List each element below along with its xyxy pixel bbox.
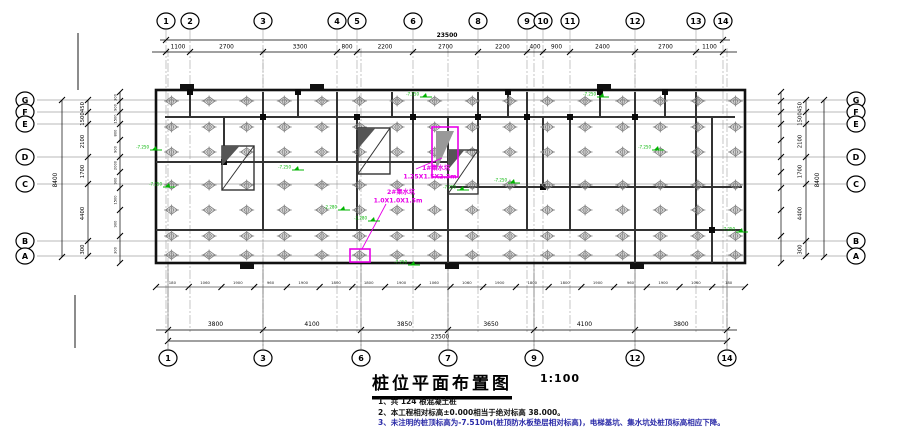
dim-segment-bottom: 3800 [673, 321, 688, 328]
wall-tab [310, 84, 324, 91]
dim-segment-bottom: 3650 [483, 321, 498, 328]
axis-bubble-label: A [853, 252, 860, 261]
dim-segment-sub: 1900 [397, 280, 407, 285]
dim-segment-top: 1100 [171, 45, 186, 51]
dim-segment-sub: 1900 [233, 280, 243, 285]
note-line: 2、本工程相对标高±0.000相当于绝对标高 38.000。 [378, 408, 725, 419]
axis-bubble-label: B [22, 237, 28, 246]
sump-label: 1#集水坑 [422, 164, 451, 172]
column-blob [260, 114, 266, 120]
dim-segment-top: 900 [551, 45, 562, 51]
note-line: 3、未注明的桩顶标高为-7.510m(桩顶防水板垫层相对标高)，电梯基坑、集水坑… [378, 418, 725, 429]
dim-segment-sub: 180 [169, 280, 177, 285]
elevation-marker [340, 206, 345, 210]
dim-segment-side: 1500 [114, 114, 118, 124]
elevation-value: -7.250 [394, 260, 407, 265]
axis-bubble-label: 10 [537, 17, 549, 26]
stair-flight [448, 150, 465, 170]
dim-segment-side: 300 [114, 93, 118, 101]
dim-segment-sub: 1900 [658, 280, 668, 285]
drawing-title: 桩位平面布置图 [372, 369, 512, 397]
dim-segment-sub: 960 [627, 280, 635, 285]
dim-segment-top: 2700 [658, 45, 673, 51]
dim-segment-side: 2100 [798, 134, 804, 148]
elevation-value: -7.250 [494, 178, 507, 183]
dim-segment-side: 1500 [80, 112, 86, 126]
elevation-marker [294, 166, 299, 170]
axis-bubble-label: 14 [717, 17, 729, 26]
axis-bubble-label: 7 [445, 354, 451, 363]
dim-overall-right: 8400 [815, 172, 821, 187]
elevation-marker [370, 217, 375, 221]
axis-bubble-label: D [853, 153, 860, 162]
column-blob [187, 89, 193, 95]
dim-segment-side: 900 [114, 177, 118, 185]
dim-segment-side: 300 [798, 244, 804, 255]
dim-segment-side: 1700 [80, 164, 86, 178]
elevation-value: -7.250 [638, 145, 651, 150]
dim-segment-top: 1100 [702, 45, 717, 51]
axis-bubble-label: 11 [564, 17, 576, 26]
dim-segment-side: 900 [114, 145, 118, 153]
dim-segment-side: 300 [80, 244, 86, 255]
dim-overall-top: 23500 [437, 32, 458, 39]
dim-segment-top: 3300 [293, 45, 308, 51]
dim-segment-sub: 180 [725, 280, 733, 285]
axis-bubble-label: C [853, 180, 859, 189]
axis-bubble-label: 9 [524, 17, 530, 26]
axis-bubble-label: 5 [354, 17, 360, 26]
stair-flight [358, 128, 376, 149]
axis-bubble-label: 13 [690, 17, 701, 26]
column-blob [295, 89, 301, 95]
dim-segment-side: 1700 [798, 164, 804, 178]
elevation-value: -2.280 [354, 216, 367, 221]
dim-segment-top: 2700 [219, 45, 234, 51]
column-blob [475, 114, 481, 120]
dim-segment-side: 4400 [80, 206, 86, 220]
axis-bubble-label: 6 [358, 354, 364, 363]
dim-segment-sub: 1060 [691, 280, 701, 285]
axis-bubble-label: 12 [629, 354, 640, 363]
axis-bubble-label: 6 [410, 17, 416, 26]
dim-segment-top: 2200 [495, 45, 510, 51]
dim-overall-bottom: 23500 [431, 335, 450, 341]
axis-bubble-label: 14 [721, 354, 733, 363]
axis-bubble-label: 3 [260, 354, 266, 363]
dim-segment-side: 900 [114, 103, 118, 111]
dim-segment-side: 1500 [798, 112, 804, 126]
dim-segment-side: 900 [114, 220, 118, 228]
axis-bubble-label: 2 [187, 17, 193, 26]
elevation-value: -7.250 [722, 227, 735, 232]
wall-tab [445, 262, 459, 269]
column-blob [567, 114, 573, 120]
wall-tab [240, 262, 254, 269]
title-block: 桩位平面布置图 1:100 [372, 369, 580, 397]
dim-segment-side: 1500 [114, 195, 118, 205]
sump-label: 1.25X1.5X2.3m [403, 174, 456, 181]
elevation-marker [654, 146, 659, 150]
dim-segment-sub: 1060 [462, 280, 472, 285]
dim-segment-sub: 1900 [298, 280, 308, 285]
dim-segment-bottom: 3850 [397, 321, 412, 328]
wall-tab [630, 262, 644, 269]
dim-segment-sub: 1060 [429, 280, 439, 285]
dim-segment-top: 800 [341, 45, 352, 51]
dim-segment-side: 450 [80, 101, 86, 112]
dim-segment-sub: 1900 [495, 280, 505, 285]
dim-segment-sub: 960 [267, 280, 275, 285]
elevation-marker [422, 93, 427, 97]
note-line: 1、共 124 根混凝土桩 [378, 397, 725, 408]
dim-segment-side: 2100 [80, 134, 86, 148]
elevation-value: -7.250 [443, 185, 456, 190]
axis-bubble-label: D [22, 153, 29, 162]
axis-bubble-label: 1 [163, 17, 169, 26]
dim-segment-top: 2400 [595, 45, 610, 51]
dim-segment-bottom: 4100 [304, 321, 319, 328]
axis-bubble-label: 12 [629, 17, 640, 26]
dim-segment-side: 300 [114, 246, 118, 254]
elevation-value: -7.250 [583, 92, 596, 97]
axis-bubble-label: E [22, 120, 27, 129]
axis-bubble-label: 1 [165, 354, 171, 363]
column-blob [709, 227, 715, 233]
dim-segment-sub: 1060 [200, 280, 210, 285]
elevation-value: -7.250 [149, 182, 162, 187]
axis-bubble-label: 8 [475, 17, 481, 26]
dim-segment-top: 2700 [438, 45, 453, 51]
column-blob [632, 114, 638, 120]
axis-bubble-label: E [853, 120, 858, 129]
sump-label: 2#集水坑 [387, 188, 416, 196]
axis-bubble-label: 9 [531, 354, 537, 363]
axis-bubble-label: 4 [334, 17, 340, 26]
axis-bubble-label: C [22, 180, 28, 189]
column-blob [662, 89, 668, 95]
dim-segment-sub: 1800 [560, 280, 570, 285]
dim-segment-bottom: 4100 [577, 321, 592, 328]
elevation-value: -7.250 [406, 92, 419, 97]
notes-block: 1、共 124 根混凝土桩 2、本工程相对标高±0.000相当于绝对标高 38.… [378, 397, 725, 429]
dim-overall-left: 8400 [53, 172, 59, 187]
dim-segment-side: 450 [798, 101, 804, 112]
dim-segment-side: 800 [114, 129, 118, 137]
elevation-value: -2.280 [324, 205, 337, 210]
dim-segment-bottom: 3800 [208, 321, 223, 328]
column-blob [524, 114, 530, 120]
elevation-value: -7.250 [136, 145, 149, 150]
dim-segment-top: 400 [529, 45, 540, 51]
axis-bubble-label: B [853, 237, 859, 246]
cad-canvas: 2350011002700330080022002700220040090024… [0, 0, 900, 446]
dim-segment-sub: 1800 [331, 280, 341, 285]
dim-segment-top: 2200 [378, 45, 393, 51]
drawing-scale: 1:100 [540, 372, 580, 385]
column-blob [354, 114, 360, 120]
dim-segment-sub: 1800 [527, 280, 537, 285]
axis-bubble-label: A [22, 252, 29, 261]
dim-segment-side: 2000 [114, 160, 118, 170]
elevation-value: -7.250 [278, 165, 291, 170]
column-blob [505, 89, 511, 95]
dim-segment-side: 4400 [798, 206, 804, 220]
dim-segment-sub: 1900 [593, 280, 603, 285]
sump-leader [362, 204, 386, 249]
column-blob [410, 114, 416, 120]
axis-bubble-label: 3 [260, 17, 266, 26]
dim-segment-sub: 1800 [364, 280, 374, 285]
sump-label: 1.0X1.0X1.5m [374, 198, 423, 205]
